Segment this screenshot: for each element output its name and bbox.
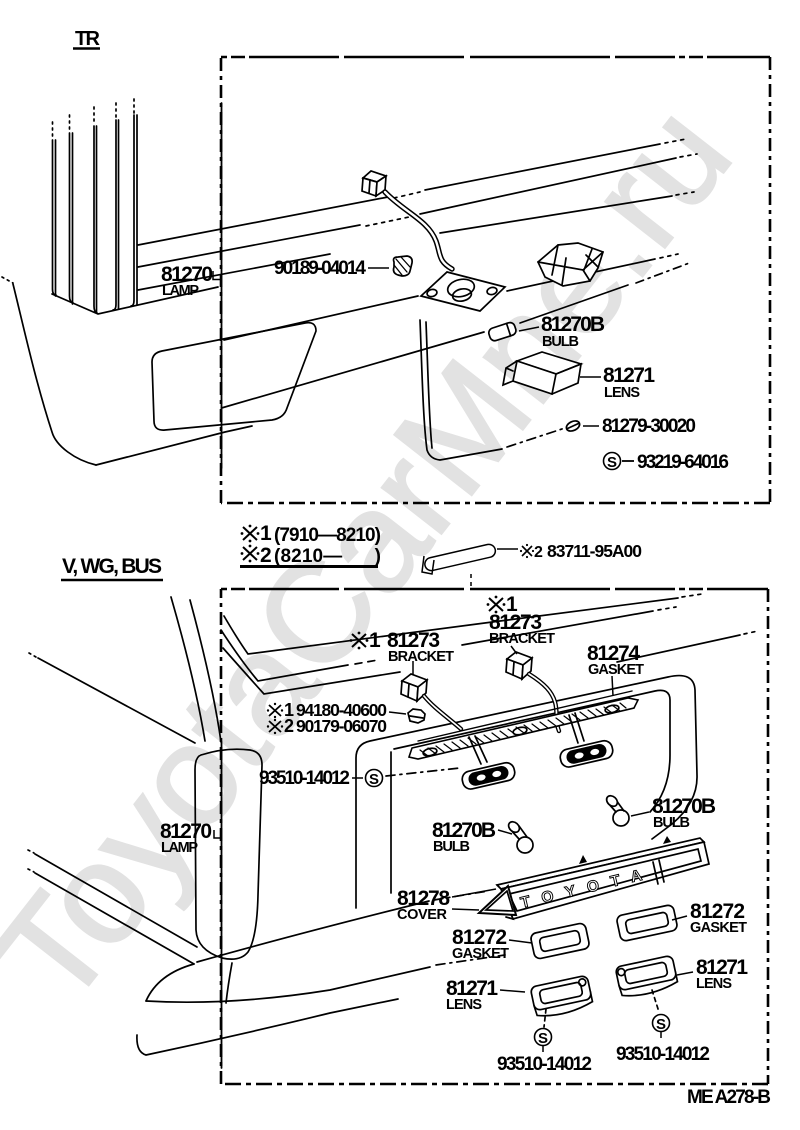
- svg-text:BULB: BULB: [433, 839, 470, 855]
- svg-text:GASKET: GASKET: [690, 920, 747, 936]
- svg-text:GASKET: GASKET: [588, 662, 644, 678]
- svg-text:1: 1: [260, 522, 272, 545]
- svg-text:90179-06070: 90179-06070: [296, 716, 387, 736]
- svg-text:COVER: COVER: [397, 907, 448, 923]
- svg-text:2: 2: [284, 716, 294, 736]
- svg-text:S: S: [369, 771, 379, 788]
- svg-text:ME A278-B: ME A278-B: [687, 1087, 771, 1108]
- svg-text:1: 1: [369, 629, 381, 652]
- svg-text:81270B: 81270B: [541, 313, 605, 336]
- svg-text:BRACKET: BRACKET: [388, 649, 454, 665]
- svg-text:LENS: LENS: [604, 385, 640, 401]
- svg-text:GASKET: GASKET: [452, 946, 509, 962]
- svg-text:83711-95A00: 83711-95A00: [547, 541, 642, 561]
- svg-text:BULB: BULB: [653, 815, 690, 831]
- svg-text:93219-64016: 93219-64016: [637, 452, 729, 473]
- svg-text:(7910—8210): (7910—8210): [274, 525, 381, 546]
- svg-text:LENS: LENS: [696, 976, 732, 992]
- svg-text:S: S: [538, 1030, 548, 1047]
- svg-text:81279-30020: 81279-30020: [602, 416, 696, 437]
- svg-text:LENS: LENS: [446, 997, 482, 1013]
- svg-text:93510-14012: 93510-14012: [497, 1054, 592, 1075]
- svg-text:93510-14012: 93510-14012: [616, 1044, 710, 1065]
- svg-text:LAMP: LAMP: [162, 283, 199, 299]
- svg-text:2: 2: [534, 544, 543, 561]
- svg-text:BRACKET: BRACKET: [489, 631, 555, 647]
- svg-text:S: S: [656, 1016, 666, 1033]
- svg-text:BULB: BULB: [542, 334, 579, 350]
- svg-text:S: S: [607, 454, 617, 471]
- svg-text:93510-14012: 93510-14012: [259, 768, 350, 789]
- svg-text:(8210— ): (8210— ): [274, 546, 381, 567]
- svg-text:LAMP: LAMP: [161, 840, 198, 856]
- svg-text:TR: TR: [75, 28, 101, 50]
- svg-text:2: 2: [260, 544, 272, 567]
- svg-text:V, WG, BUS: V, WG, BUS: [62, 555, 162, 578]
- svg-text:81271: 81271: [603, 364, 655, 387]
- svg-text:90189-04014: 90189-04014: [274, 258, 366, 279]
